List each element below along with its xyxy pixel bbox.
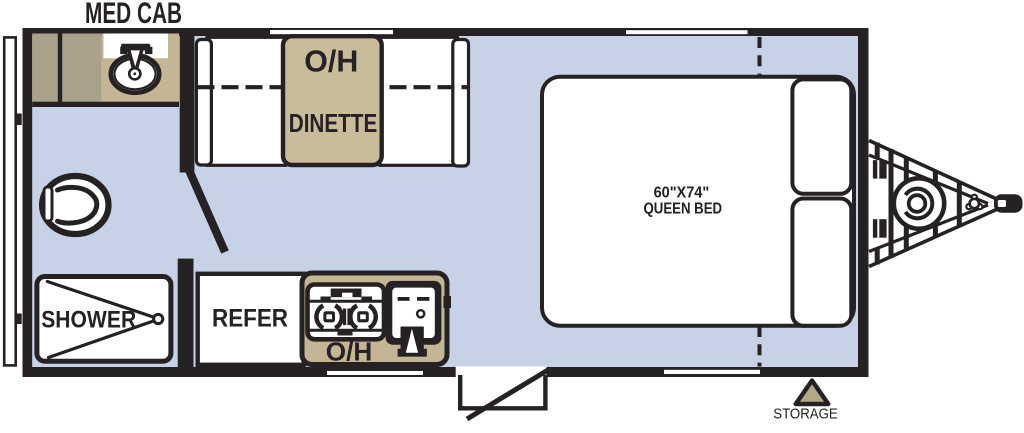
svg-text:SHOWER: SHOWER (41, 307, 136, 334)
svg-text:QUEEN BED: QUEEN BED (644, 200, 723, 217)
svg-text:60"X74": 60"X74" (654, 185, 710, 202)
svg-text:STORAGE: STORAGE (773, 407, 838, 423)
svg-text:O/H: O/H (326, 339, 373, 367)
svg-text:MED CAB: MED CAB (85, 0, 182, 30)
svg-text:REFER: REFER (212, 305, 288, 333)
svg-text:O/H: O/H (304, 44, 358, 79)
svg-text:DINETTE: DINETTE (289, 108, 378, 138)
